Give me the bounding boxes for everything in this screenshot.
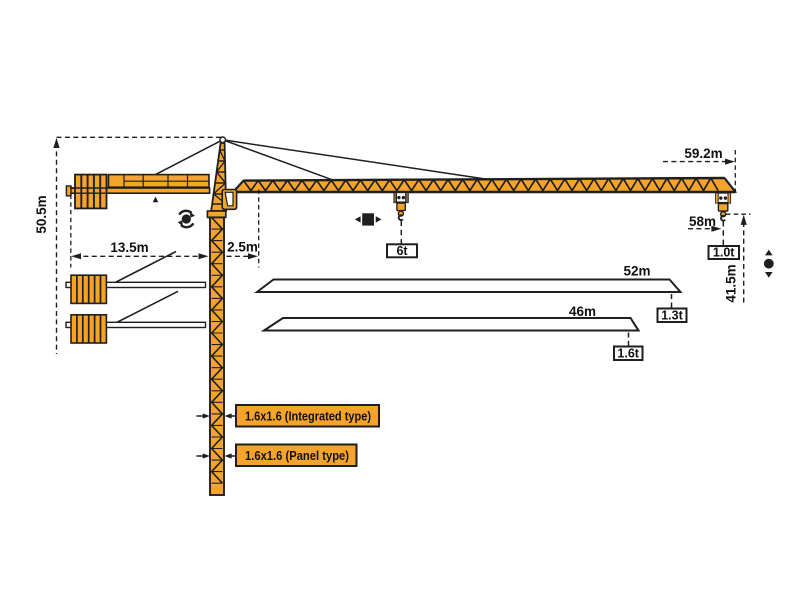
svg-text:50.5m: 50.5m: [34, 195, 49, 233]
svg-text:6t: 6t: [396, 244, 408, 258]
svg-text:59.2m: 59.2m: [684, 146, 722, 161]
svg-text:52m: 52m: [623, 263, 650, 278]
svg-text:1.3t: 1.3t: [661, 308, 683, 322]
svg-text:1.6x1.6 (Panel type): 1.6x1.6 (Panel type): [245, 448, 349, 463]
svg-text:2.5m: 2.5m: [227, 240, 258, 255]
svg-text:1.6t: 1.6t: [617, 346, 639, 360]
svg-text:1.0t: 1.0t: [713, 246, 735, 260]
svg-text:13.5m: 13.5m: [110, 240, 148, 255]
svg-text:46m: 46m: [569, 304, 596, 319]
svg-text:41.5m: 41.5m: [724, 264, 739, 302]
svg-text:1.6x1.6 (Integrated type): 1.6x1.6 (Integrated type): [245, 409, 371, 424]
svg-text:58m: 58m: [689, 214, 716, 229]
